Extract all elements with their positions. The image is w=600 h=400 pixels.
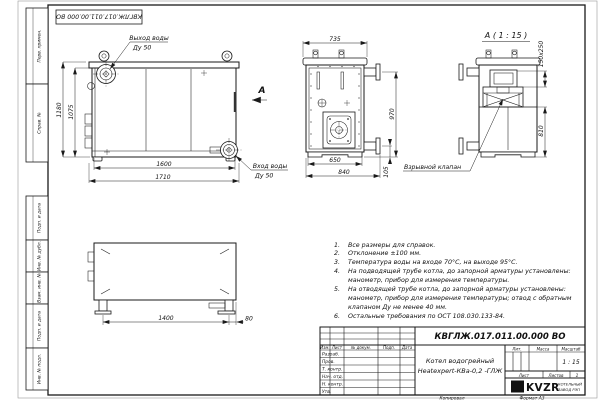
col-doc: № докум. <box>350 345 371 350</box>
dim-front-width-body: 1600 <box>156 161 171 168</box>
dim-front-width-total: 1710 <box>155 174 170 181</box>
side-view: 735 650 840 970 105 <box>303 36 398 178</box>
support-legs <box>95 300 235 314</box>
section-letter: А <box>258 86 266 96</box>
row-utv: Утв. <box>322 389 331 395</box>
scale-label: Масштаб <box>561 346 581 351</box>
col-list: Лист <box>331 345 343 350</box>
mass-label: Масса <box>537 346 550 351</box>
outlet-label: Выход воды <box>129 35 169 42</box>
note-text: Все размеры для справок. <box>348 242 584 251</box>
title-block: КВГЛЖ.017.011.00.000 ВО Изм. Лист № доку… <box>320 327 585 395</box>
product-name-line2: Heatexpert-КВа-0,2 -ГЛЖ <box>418 367 504 375</box>
scale-value: 1 : 15 <box>562 359 579 366</box>
row-nachotd: Нач. отд. <box>322 374 343 380</box>
row-razrab: Разраб. <box>322 352 339 358</box>
note-item: 3.Температура воды на входе 70°С, на вых… <box>331 259 584 268</box>
note-text: Остальные требования по ОСТ 108.030.133-… <box>348 313 584 322</box>
margin-label: Справ. № <box>37 112 43 134</box>
note-number: 5. <box>331 286 345 313</box>
detail-title: А ( 1 : 15 ) <box>484 31 527 40</box>
front-view: 1180 1075 1600 1710 Выход воды Ду 50 Вхо… <box>56 35 288 183</box>
explosion-valve <box>483 87 523 107</box>
margin-label: Инв. № дубл. <box>37 241 43 271</box>
logo-mark-icon <box>511 381 524 393</box>
detail-flanges <box>459 64 479 154</box>
row-tkontr: Т. контр. <box>322 367 342 373</box>
inlet-label: Вход воды <box>253 163 288 170</box>
row-nkontr: Н. контр. <box>322 382 343 388</box>
dim-side-flange-offset: 105 <box>383 166 390 178</box>
note-text: На отводящей трубе котла, до запорной ар… <box>348 286 584 313</box>
doc-number: КВГЛЖ.017.011.00.000 ВО <box>435 332 566 342</box>
dim-side-bottom: 650 <box>329 157 341 164</box>
top-stamp-text: КВГЛЖ.017.011.00.000 ВО <box>56 13 142 20</box>
drawing-canvas: КВГЛЖ.017.011.00.000 ВО Перв. примен. Сп… <box>0 0 600 400</box>
note-number: 3. <box>331 259 345 268</box>
valve-label: Взрывной клапан <box>404 164 461 171</box>
dim-detail-height: 810 <box>538 125 545 137</box>
left-margin-stamps: Перв. примен. Справ. № Подп. и дата Инв.… <box>26 8 48 390</box>
note-item: 1.Все размеры для справок. <box>331 242 584 251</box>
company-logo: KVZR КОТЕЛЬНЫЙ ЗАВОД РЭП <box>511 381 582 395</box>
outlet-dn: Ду 50 <box>132 45 151 52</box>
note-text: На подводящей трубе котла, до запорной а… <box>348 268 584 286</box>
note-text: Температура воды на входе 70°С, на выход… <box>348 259 584 268</box>
sheet-label: Лист <box>518 373 530 378</box>
format-label: Формат А3 <box>519 396 544 400</box>
note-item: 5.На отводящей трубе котла, до запорной … <box>331 286 584 313</box>
dim-side-height: 970 <box>389 108 396 120</box>
boiler-body-front <box>92 68 236 157</box>
product-name-line1: Котел водогрейный <box>426 357 494 365</box>
company-line2: ЗАВОД РЭП <box>558 388 580 392</box>
col-data: Дата <box>401 345 413 350</box>
lifting-eye-icon <box>99 51 232 61</box>
dim-side-top: 735 <box>329 36 341 43</box>
col-izm: Изм. <box>320 345 329 350</box>
logo-text: KVZR <box>526 382 560 394</box>
margin-label: Перв. примен. <box>37 30 43 63</box>
inlet-dn: Ду 50 <box>254 173 273 180</box>
drawing-sheet: КВГЛЖ.017.011.00.000 ВО Перв. примен. Сп… <box>0 0 600 400</box>
note-number: 6. <box>331 313 345 322</box>
dim-front-height-body: 1075 <box>68 104 75 119</box>
note-number: 2. <box>331 250 345 259</box>
inlet-leader: Вход воды Ду 50 <box>236 156 288 180</box>
side-flanges <box>364 64 380 154</box>
lit-label: Лит. <box>511 346 521 351</box>
dim-front-height-total: 1180 <box>56 102 63 117</box>
margin-label: Инв. № подл. <box>37 354 43 384</box>
note-item: 4.На подводящей трубе котла, до запорной… <box>331 268 584 286</box>
sheets-label: Листов <box>548 373 565 378</box>
technical-notes: 1.Все размеры для справок. 2.Отклонение … <box>331 242 584 322</box>
margin-label: Взам. инв. № <box>37 273 43 303</box>
margin-label: Подп. и дата <box>37 311 43 341</box>
section-arrow: А <box>252 86 267 100</box>
copied-label: Копировал <box>439 396 464 400</box>
bottom-view: 1400 80 <box>88 243 253 325</box>
dim-leg-offset: 80 <box>245 316 253 323</box>
detail-view-a: А ( 1 : 15 ) 150х250 8 <box>403 31 547 171</box>
note-number: 1. <box>331 242 345 251</box>
note-item: 6.Остальные требования по ОСТ 108.030.13… <box>331 313 584 322</box>
boiler-body-elevation <box>94 243 236 300</box>
company-line1: КОТЕЛЬНЫЙ <box>558 382 582 387</box>
dim-valve-plate: 150х250 <box>538 41 545 68</box>
margin-label: Подп. и дата <box>37 203 43 233</box>
row-prov: Пров. <box>322 359 335 365</box>
furnace-door <box>323 112 355 148</box>
dim-legs-span: 1400 <box>158 315 173 322</box>
sheets-value: 1 <box>576 373 579 379</box>
dim-side-total: 840 <box>338 169 350 176</box>
col-podp: Подп. <box>383 345 395 350</box>
note-number: 4. <box>331 268 345 286</box>
